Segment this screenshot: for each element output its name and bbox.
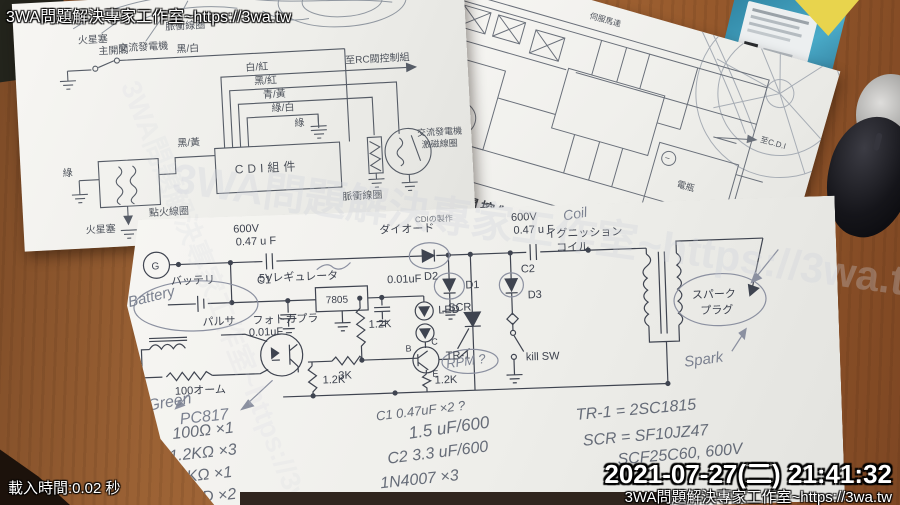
photocoupler-label: フォトカプラ — [252, 314, 318, 327]
battery-minus-symbol: − — [663, 153, 671, 164]
pulser-label: パルサ — [202, 317, 235, 329]
pencil-coil-note: Coil — [562, 205, 588, 223]
watermark-bottom-right: 3WA問題解決專家工作室~https://3wa.tw — [625, 486, 892, 505]
r3k-label: 3K — [338, 371, 352, 382]
c2-voltage-label: 600V — [511, 212, 537, 224]
ignition-coil-label: 點火線圈 — [149, 207, 189, 219]
pin-b-label: B — [405, 344, 411, 353]
photo-of-desk-with-circuit-diagrams: − + 電瓶 白/黑 伺服馬達 至C.D.I RC閥控制組/伺服馬達電路圖 —2… — [0, 0, 900, 505]
led-label: LED — [438, 305, 460, 317]
spark-plug-label-line1: スパーク — [692, 289, 736, 302]
wire-white-red-label: 白/紅 — [245, 63, 268, 74]
spark-plug-bottom-label: 火星塞 — [86, 225, 116, 237]
diode-label: ダイオード — [379, 224, 434, 237]
kill-switch-label: kill SW — [526, 351, 560, 363]
pin-c-label: C — [431, 337, 438, 346]
7805-label: 7805 — [326, 295, 349, 307]
c1-voltage-label: 600V — [233, 224, 259, 236]
battery-katakana-label: バッテリ — [171, 275, 215, 288]
wire-green-white-label: 綠/白 — [271, 103, 294, 114]
watermark-top-left: 3WA問題解決專家工作室~https://3wa.tw — [6, 3, 291, 27]
c2-name-label: C2 — [521, 264, 535, 275]
d1-label: D1 — [465, 280, 479, 291]
d2-label: D2 — [424, 271, 438, 282]
cap-001-right-label: 0.01uF — [387, 274, 422, 286]
pulse-coil-label: 脈衝線圈 — [342, 191, 382, 203]
main-switch-label: 主開關 — [98, 46, 128, 58]
cap-001-left-label: 0.01uF — [249, 327, 284, 339]
mouse-scroll-wheel — [873, 132, 883, 151]
wire-black-yellow-label: 黑/黃 — [177, 138, 200, 149]
d3-label: D3 — [528, 290, 542, 301]
pin-e-label: E — [432, 369, 438, 378]
generator-symbol: G — [151, 261, 159, 272]
wire-green-left-label: 綠 — [63, 169, 74, 180]
r12k-pullup-label: 1.2K — [369, 319, 392, 331]
c1-value-label: 0.47 u F — [236, 236, 277, 248]
wire-blue-yellow-label: 青/黃 — [263, 90, 286, 101]
cdi-unit-label: CDI組件 — [234, 160, 299, 175]
battery-label: 電瓶 — [676, 178, 696, 194]
load-time-text: 載入時間:0.02 秒 — [8, 477, 121, 498]
wire-green-mid-label: 綠 — [294, 119, 305, 130]
ignition-coil-label-line2: コイル — [556, 242, 589, 254]
spark-plug-label-line2: プラグ — [700, 305, 733, 317]
exciter-coil-label-line2: 激磁線圈 — [422, 139, 458, 150]
wire-black-white-label: 黑/白 — [176, 44, 199, 55]
wire-black-red-label: 黑/紅 — [254, 76, 277, 87]
spark-plug-top-label: 火星塞 — [78, 35, 108, 47]
